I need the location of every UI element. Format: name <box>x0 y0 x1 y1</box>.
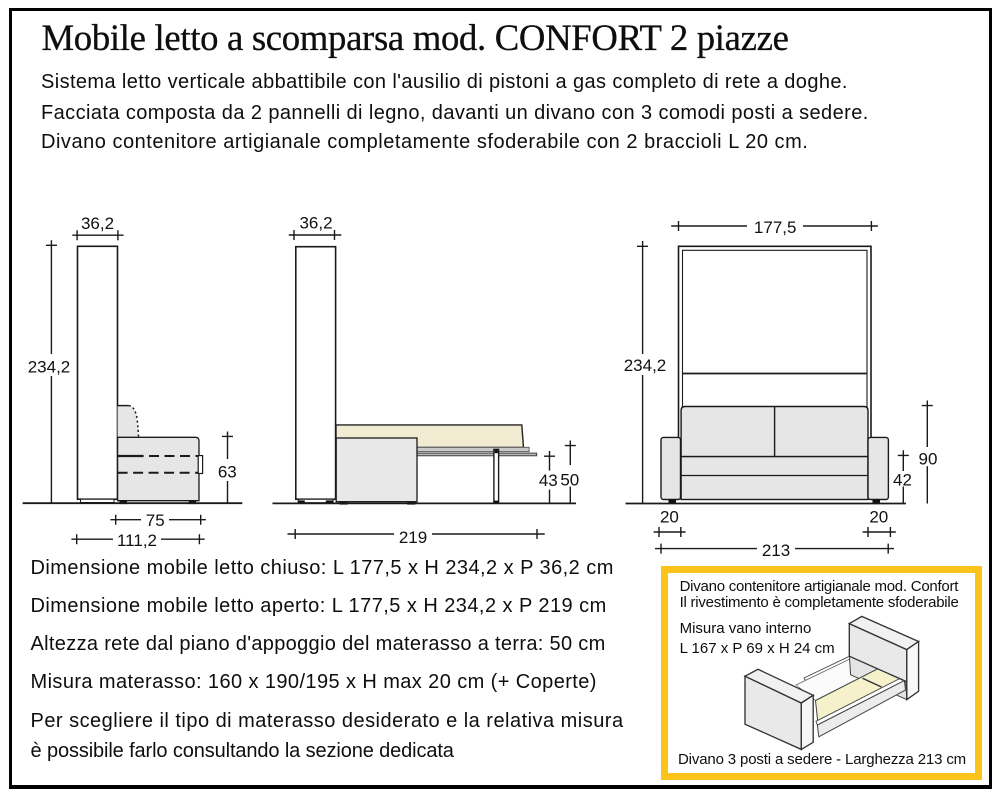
svg-text:42: 42 <box>893 470 912 489</box>
svg-text:234,2: 234,2 <box>28 358 71 377</box>
svg-text:177,5: 177,5 <box>754 218 797 237</box>
svg-text:43: 43 <box>539 471 558 490</box>
svg-text:90: 90 <box>919 450 938 469</box>
svg-text:63: 63 <box>218 463 237 482</box>
svg-text:50: 50 <box>560 470 579 489</box>
svg-text:36,2: 36,2 <box>81 214 114 233</box>
svg-text:75: 75 <box>146 511 165 530</box>
svg-text:20: 20 <box>869 507 888 526</box>
svg-text:219: 219 <box>399 528 427 547</box>
svg-text:234,2: 234,2 <box>624 356 667 375</box>
svg-text:213: 213 <box>762 541 790 560</box>
svg-text:111,2: 111,2 <box>117 531 157 550</box>
svg-text:36,2: 36,2 <box>299 213 332 232</box>
svg-text:20: 20 <box>660 507 679 526</box>
